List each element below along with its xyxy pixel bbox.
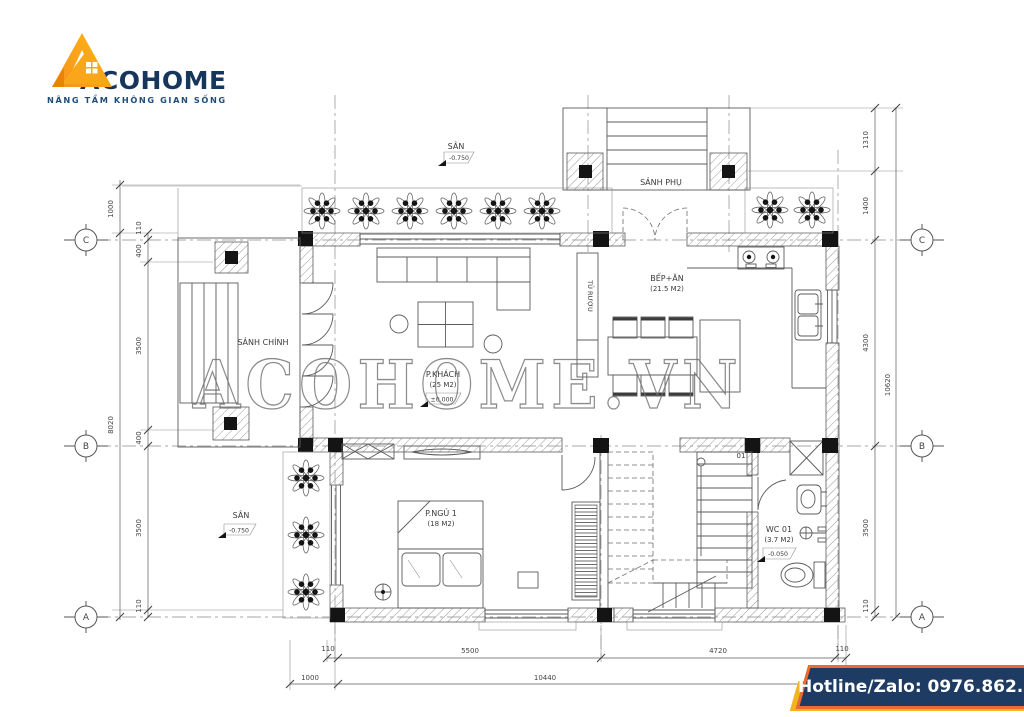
room-area-p-ngu1: (18 M2) bbox=[427, 520, 454, 528]
dim-label: 5500 bbox=[461, 647, 479, 655]
dim-label: 3500 bbox=[135, 519, 143, 537]
dim-label: 4720 bbox=[709, 647, 727, 655]
level-value: -0.050 bbox=[768, 551, 788, 558]
wc-door bbox=[758, 477, 786, 510]
level-mark: -0.750 bbox=[438, 152, 474, 166]
dim-label: 110 bbox=[135, 221, 143, 234]
grid-letter: C bbox=[919, 236, 925, 246]
watermark-text: ACOHOME.VN bbox=[192, 346, 743, 424]
sofa bbox=[377, 248, 530, 310]
dim-label: 10440 bbox=[534, 674, 556, 682]
planter-top-right bbox=[745, 188, 833, 233]
floor-plan-page: C B A C B A 1000 8020 110 400 3500 400 3… bbox=[0, 0, 1024, 717]
grid-marker-a-right: A bbox=[900, 601, 944, 633]
nightstand bbox=[518, 572, 538, 588]
planter-top-left bbox=[302, 188, 612, 233]
dim-label: 110 bbox=[835, 645, 848, 653]
room-label-san-left: SÂN bbox=[233, 509, 250, 520]
grid-letter: C bbox=[83, 236, 89, 246]
room-label-sanh-phu: SẢNH PHỤ bbox=[640, 176, 682, 187]
room-label-wc01: WC 01 bbox=[766, 525, 792, 534]
room-area-wc01: (3.7 M2) bbox=[764, 536, 794, 544]
bedroom-door bbox=[562, 455, 595, 490]
grid-letter: B bbox=[919, 442, 925, 452]
grid-letter: A bbox=[919, 613, 926, 623]
walls bbox=[298, 231, 845, 630]
room-label-bep-an: BẾP+ĂN bbox=[650, 272, 684, 283]
hotline-text: Hotline/Zalo: 0976.862.595 bbox=[798, 677, 1024, 697]
dim-label: 3500 bbox=[135, 337, 143, 355]
dim-label: 110 bbox=[135, 599, 143, 612]
logo-graphic: ACOHOME NÂNG TẦM KHÔNG GIAN SỐNG bbox=[22, 10, 262, 110]
dim-label: 110 bbox=[862, 599, 870, 612]
hotline-banner: Hotline/Zalo: 0976.862.595 bbox=[792, 665, 1024, 713]
planter-left bbox=[283, 452, 330, 618]
hotline-banner-body: Hotline/Zalo: 0976.862.595 bbox=[796, 665, 1024, 709]
dim-label: 8020 bbox=[107, 416, 115, 434]
dim-label: 110 bbox=[321, 645, 334, 653]
shower bbox=[800, 527, 826, 542]
dim-label: 3500 bbox=[862, 519, 870, 537]
dim-label: 1000 bbox=[301, 674, 319, 682]
dim-label: 1000 bbox=[107, 200, 115, 218]
grid-marker-a-left: A bbox=[64, 601, 108, 633]
toilet bbox=[781, 562, 825, 588]
dim-label: 10620 bbox=[884, 374, 892, 396]
acohome-logo: ACOHOME NÂNG TẦM KHÔNG GIAN SỐNG bbox=[22, 10, 262, 114]
grid-marker-b-right: B bbox=[900, 430, 944, 462]
logo-tagline: NÂNG TẦM KHÔNG GIAN SỐNG bbox=[47, 93, 227, 105]
dim-label: 400 bbox=[135, 431, 143, 444]
stair-number: 01 bbox=[737, 452, 746, 460]
level-mark: -0.050 bbox=[757, 548, 796, 562]
shoe-cabinet bbox=[572, 502, 600, 600]
dim-label: 4300 bbox=[862, 334, 870, 352]
grid-marker-b-left: B bbox=[64, 430, 108, 462]
room-label-tu-ruou: TỦ RƯỢU bbox=[586, 279, 596, 312]
dim-label: 1400 bbox=[862, 197, 870, 215]
wc-sink bbox=[797, 485, 827, 514]
side-porch bbox=[563, 108, 750, 240]
double-door bbox=[623, 208, 687, 240]
grid-marker-c-left: C bbox=[64, 224, 108, 256]
staircase bbox=[608, 452, 752, 612]
level-mark: -0.750 bbox=[218, 524, 256, 538]
level-value: -0.750 bbox=[229, 528, 249, 535]
room-area-bep-an: (21.5 M2) bbox=[650, 285, 684, 293]
grid-letter: B bbox=[83, 442, 89, 452]
grid-marker-c-right: C bbox=[900, 224, 944, 256]
sink bbox=[795, 290, 823, 340]
room-label-p-ngu1: P.NGỦ 1 bbox=[425, 507, 457, 518]
stove bbox=[738, 247, 784, 269]
room-label-san-top: SÂN bbox=[448, 140, 465, 151]
ceiling-fan bbox=[375, 584, 391, 600]
grid-letter: A bbox=[83, 613, 90, 623]
level-value: -0.750 bbox=[449, 155, 469, 162]
house-icon bbox=[52, 33, 112, 87]
dim-label: 400 bbox=[135, 244, 143, 257]
dim-label: 1310 bbox=[862, 131, 870, 149]
